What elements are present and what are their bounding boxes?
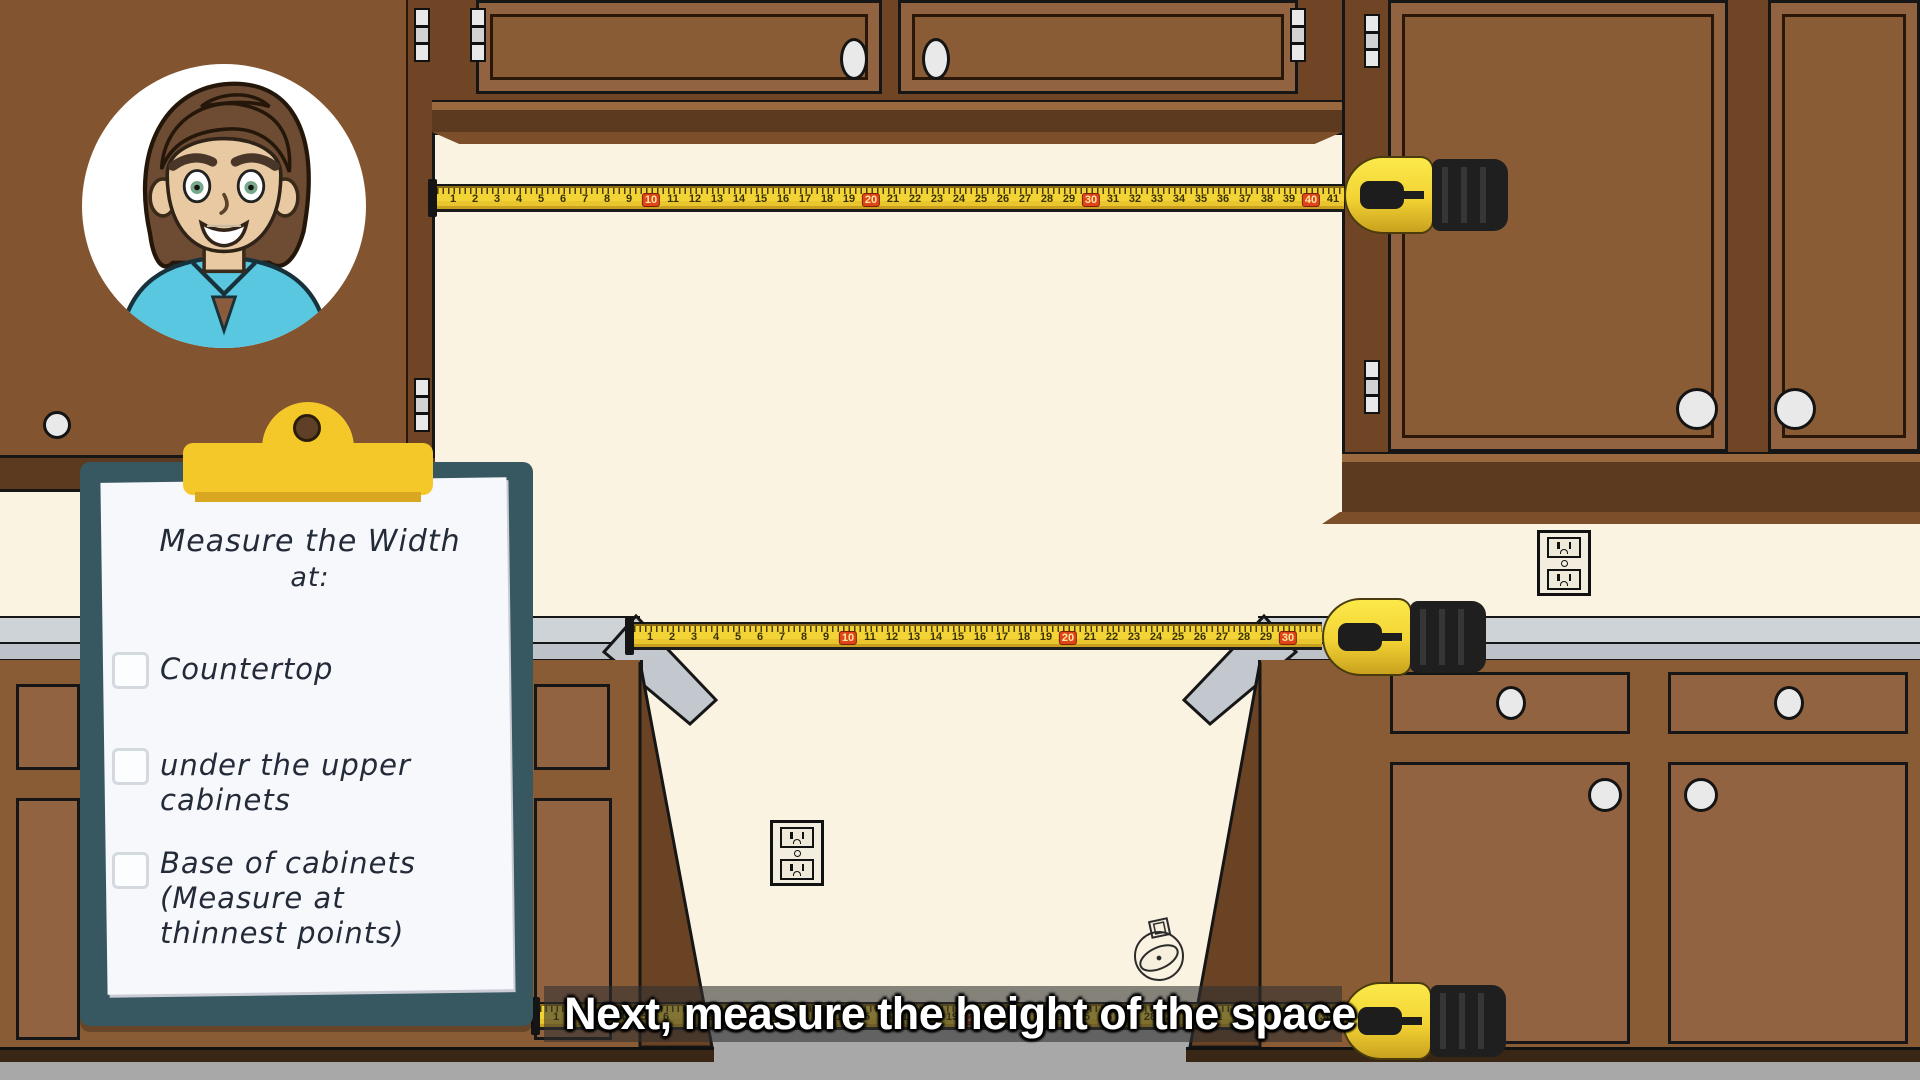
upper-tape-number-27: 27: [1019, 193, 1031, 205]
outlet-slot: [1557, 542, 1560, 549]
base-left-drawer-sliver-b: [534, 684, 610, 770]
upper-tape-number-26: 26: [997, 193, 1009, 205]
upper-center-knob-left: [840, 38, 868, 80]
clipboard-clip-bar: [183, 443, 433, 495]
upper-right-knob-1: [1676, 388, 1718, 430]
checklist-label-0: Countertop: [160, 652, 500, 687]
left-tall-hinge-bottom: [414, 378, 430, 432]
counter-tape-grip-ridges: [1420, 609, 1476, 665]
counter-tape-number-3: 3: [691, 631, 697, 643]
counter-tape-number-2: 2: [669, 631, 675, 643]
outlet-receptacle: [780, 827, 814, 848]
man-avatar: [82, 64, 366, 348]
upper-center-door-right: [898, 0, 1298, 94]
outlet-ground: [793, 839, 801, 844]
presenter-avatar: [82, 64, 366, 348]
upper-right-cornice-dark: [1342, 462, 1920, 515]
counter-tape-number-11: 11: [864, 631, 876, 643]
upper-tape-number-34: 34: [1173, 193, 1185, 205]
outlet-ground: [793, 871, 801, 876]
upper-right-hinge-bottom: [1364, 360, 1380, 414]
outlet-slot: [1569, 574, 1572, 581]
counter-tape-number-14: 14: [930, 631, 942, 643]
counter-tape-number-20: 20: [1059, 631, 1077, 645]
counter-tape-number-28: 28: [1238, 631, 1250, 643]
right-drawer-2-knob: [1774, 686, 1804, 720]
upper-tape-number-5: 5: [538, 193, 544, 205]
base-left-door-sliver-a: [16, 798, 80, 1040]
counter-tape-case-grip: [1410, 601, 1486, 673]
upper-tape-number-29: 29: [1063, 193, 1075, 205]
upper-tape-number-30: 30: [1082, 193, 1100, 207]
upper-center-cornice-slope: [432, 132, 1342, 144]
upper-tape-number-22: 22: [909, 193, 921, 205]
outlet-slot: [802, 832, 805, 839]
counter-tape-number-18: 18: [1018, 631, 1030, 643]
upper-tape-number-3: 3: [494, 193, 500, 205]
checklist-checkbox-0[interactable]: [112, 652, 149, 689]
counter-tape-number-16: 16: [974, 631, 986, 643]
upper-tape-grip-ridges: [1442, 167, 1498, 223]
upper-tape-number-2: 2: [472, 193, 478, 205]
counter-tape-number-15: 15: [952, 631, 964, 643]
outlet-ground: [1560, 581, 1568, 586]
checklist-checkbox-2[interactable]: [112, 852, 149, 889]
upper-tape-number-17: 17: [799, 193, 811, 205]
counter-tape-number-12: 12: [886, 631, 898, 643]
counter-tape-number-30: 30: [1279, 631, 1297, 645]
floor: [0, 1062, 1920, 1080]
outlet-slot: [1557, 574, 1560, 581]
counter-tape-case-stem: [1380, 633, 1402, 641]
counter-tape-number-27: 27: [1216, 631, 1228, 643]
upper-tape-number-36: 36: [1217, 193, 1229, 205]
kitchen-scene: 1234567891011121314151617181920212223242…: [0, 0, 1920, 1080]
upper-tape-number-4: 4: [516, 193, 522, 205]
right-drawer-1-knob: [1496, 686, 1526, 720]
clipboard-clip-shadow: [195, 492, 421, 502]
upper-right-knob-2: [1774, 388, 1816, 430]
checklist-label-2: Base of cabinets(Measure atthinnest poin…: [160, 846, 500, 951]
counter-tape-number-29: 29: [1260, 631, 1272, 643]
counter-tape-case: [1322, 598, 1486, 676]
counter-tape-number-25: 25: [1172, 631, 1184, 643]
outlet-slot: [790, 864, 793, 871]
counter-tape-number-24: 24: [1150, 631, 1162, 643]
upper-tape-number-28: 28: [1041, 193, 1053, 205]
checklist-checkbox-1[interactable]: [112, 748, 149, 785]
counter-tape-number-13: 13: [908, 631, 920, 643]
upper-tape-number-32: 32: [1129, 193, 1141, 205]
upper-tape-case-grip: [1432, 159, 1508, 231]
clipboard-clip-hole: [293, 414, 321, 442]
upper-tape-number-1: 1: [450, 193, 456, 205]
outlet-slot: [1569, 542, 1572, 549]
upper-tape-number-6: 6: [560, 193, 566, 205]
counter-tape-number-10: 10: [839, 631, 857, 645]
upper-tape-case: [1344, 156, 1508, 234]
upper-center-door-left-panel: [490, 14, 868, 80]
power-outlet-icon-2: [770, 820, 824, 886]
upper-tape-number-38: 38: [1261, 193, 1273, 205]
upper-tape-number-11: 11: [667, 193, 679, 205]
upper-right-door-2: [1768, 0, 1920, 452]
upper-tape-number-25: 25: [975, 193, 987, 205]
counter-tape-number-9: 9: [823, 631, 829, 643]
counter-tape-number-23: 23: [1128, 631, 1140, 643]
upper-tape-number-15: 15: [755, 193, 767, 205]
upper-tape-number-9: 9: [626, 193, 632, 205]
upper-tape-number-16: 16: [777, 193, 789, 205]
outlet-receptacle: [1547, 537, 1581, 558]
caption-text: Next, measure the height of the space: [440, 988, 1480, 1040]
upper-center-cornice-dark: [432, 110, 1342, 135]
upper-tape-number-37: 37: [1239, 193, 1251, 205]
outlet-slot: [790, 832, 793, 839]
upper-tape-number-12: 12: [689, 193, 701, 205]
counter-tape-number-22: 22: [1106, 631, 1118, 643]
counter-tape-number-5: 5: [735, 631, 741, 643]
upper-tape-number-13: 13: [711, 193, 723, 205]
checklist-title: Measure the Width: [120, 524, 500, 559]
upper-center-knob-right: [922, 38, 950, 80]
upper-tape-case-stem: [1402, 191, 1424, 199]
counter-tape-number-1: 1: [647, 631, 653, 643]
counter-tape-number-26: 26: [1194, 631, 1206, 643]
counter-tape-number-7: 7: [779, 631, 785, 643]
right-door-1-knob: [1588, 778, 1622, 812]
outlet-slot: [802, 864, 805, 871]
upper-tape-number-40: 40: [1302, 193, 1320, 207]
upper-tape-number-8: 8: [604, 193, 610, 205]
counter-tape-number-4: 4: [713, 631, 719, 643]
upper-tape-number-31: 31: [1107, 193, 1119, 205]
outlet-ground: [1560, 549, 1568, 554]
upper-right-cornice-slope: [1322, 512, 1920, 524]
outlet-receptacle: [1547, 569, 1581, 590]
upper-tape-number-14: 14: [733, 193, 745, 205]
counter-tape-case-lock: [1338, 623, 1382, 651]
upper-tape-hook: [428, 179, 437, 217]
upper-center-door-right-panel: [912, 14, 1284, 80]
upper-tape-number-33: 33: [1151, 193, 1163, 205]
upper-tape-case-lock: [1360, 181, 1404, 209]
counter-tape-hook: [625, 617, 634, 655]
upper-tape-number-24: 24: [953, 193, 965, 205]
upper-tape-number-35: 35: [1195, 193, 1207, 205]
counter-tape-number-17: 17: [996, 631, 1008, 643]
counter-tape-number-21: 21: [1084, 631, 1096, 643]
left-tall-knob: [43, 411, 71, 439]
upper-right-hinge-top: [1364, 14, 1380, 68]
upper-center-door-left: [476, 0, 882, 94]
upper-center-hinge-left: [470, 8, 486, 62]
right-door-2-knob: [1684, 778, 1718, 812]
checklist-label-1: under the uppercabinets: [160, 748, 500, 818]
upper-tape-number-7: 7: [582, 193, 588, 205]
upper-tape-blade: 1234567891011121314151617181920212223242…: [437, 184, 1344, 212]
upper-tape-number-41: 41: [1327, 193, 1339, 205]
upper-center-hinge-right: [1290, 8, 1306, 62]
upper-tape-number-18: 18: [821, 193, 833, 205]
checklist-title-suffix: at:: [120, 562, 500, 593]
upper-tape-number-19: 19: [843, 193, 855, 205]
upper-tape-number-21: 21: [887, 193, 899, 205]
counter-tape-number-6: 6: [757, 631, 763, 643]
outlet-receptacle: [780, 859, 814, 880]
outlet-screw: [794, 850, 801, 857]
upper-tape-number-10: 10: [642, 193, 660, 207]
upper-tape-number-39: 39: [1283, 193, 1295, 205]
upper-right-door-2-panel: [1782, 14, 1906, 438]
counter-tape-number-8: 8: [801, 631, 807, 643]
counter-tape-blade: 1234567891011121314151617181920212223242…: [634, 622, 1322, 650]
power-outlet-icon-1: [1537, 530, 1591, 596]
outlet-screw: [1561, 560, 1568, 567]
left-tall-hinge-top: [414, 8, 430, 62]
upper-tape-number-23: 23: [931, 193, 943, 205]
base-left-drawer-sliver-a: [16, 684, 80, 770]
ring-doodle-icon: [1128, 916, 1192, 984]
upper-tape-number-20: 20: [862, 193, 880, 207]
counter-tape-number-19: 19: [1040, 631, 1052, 643]
